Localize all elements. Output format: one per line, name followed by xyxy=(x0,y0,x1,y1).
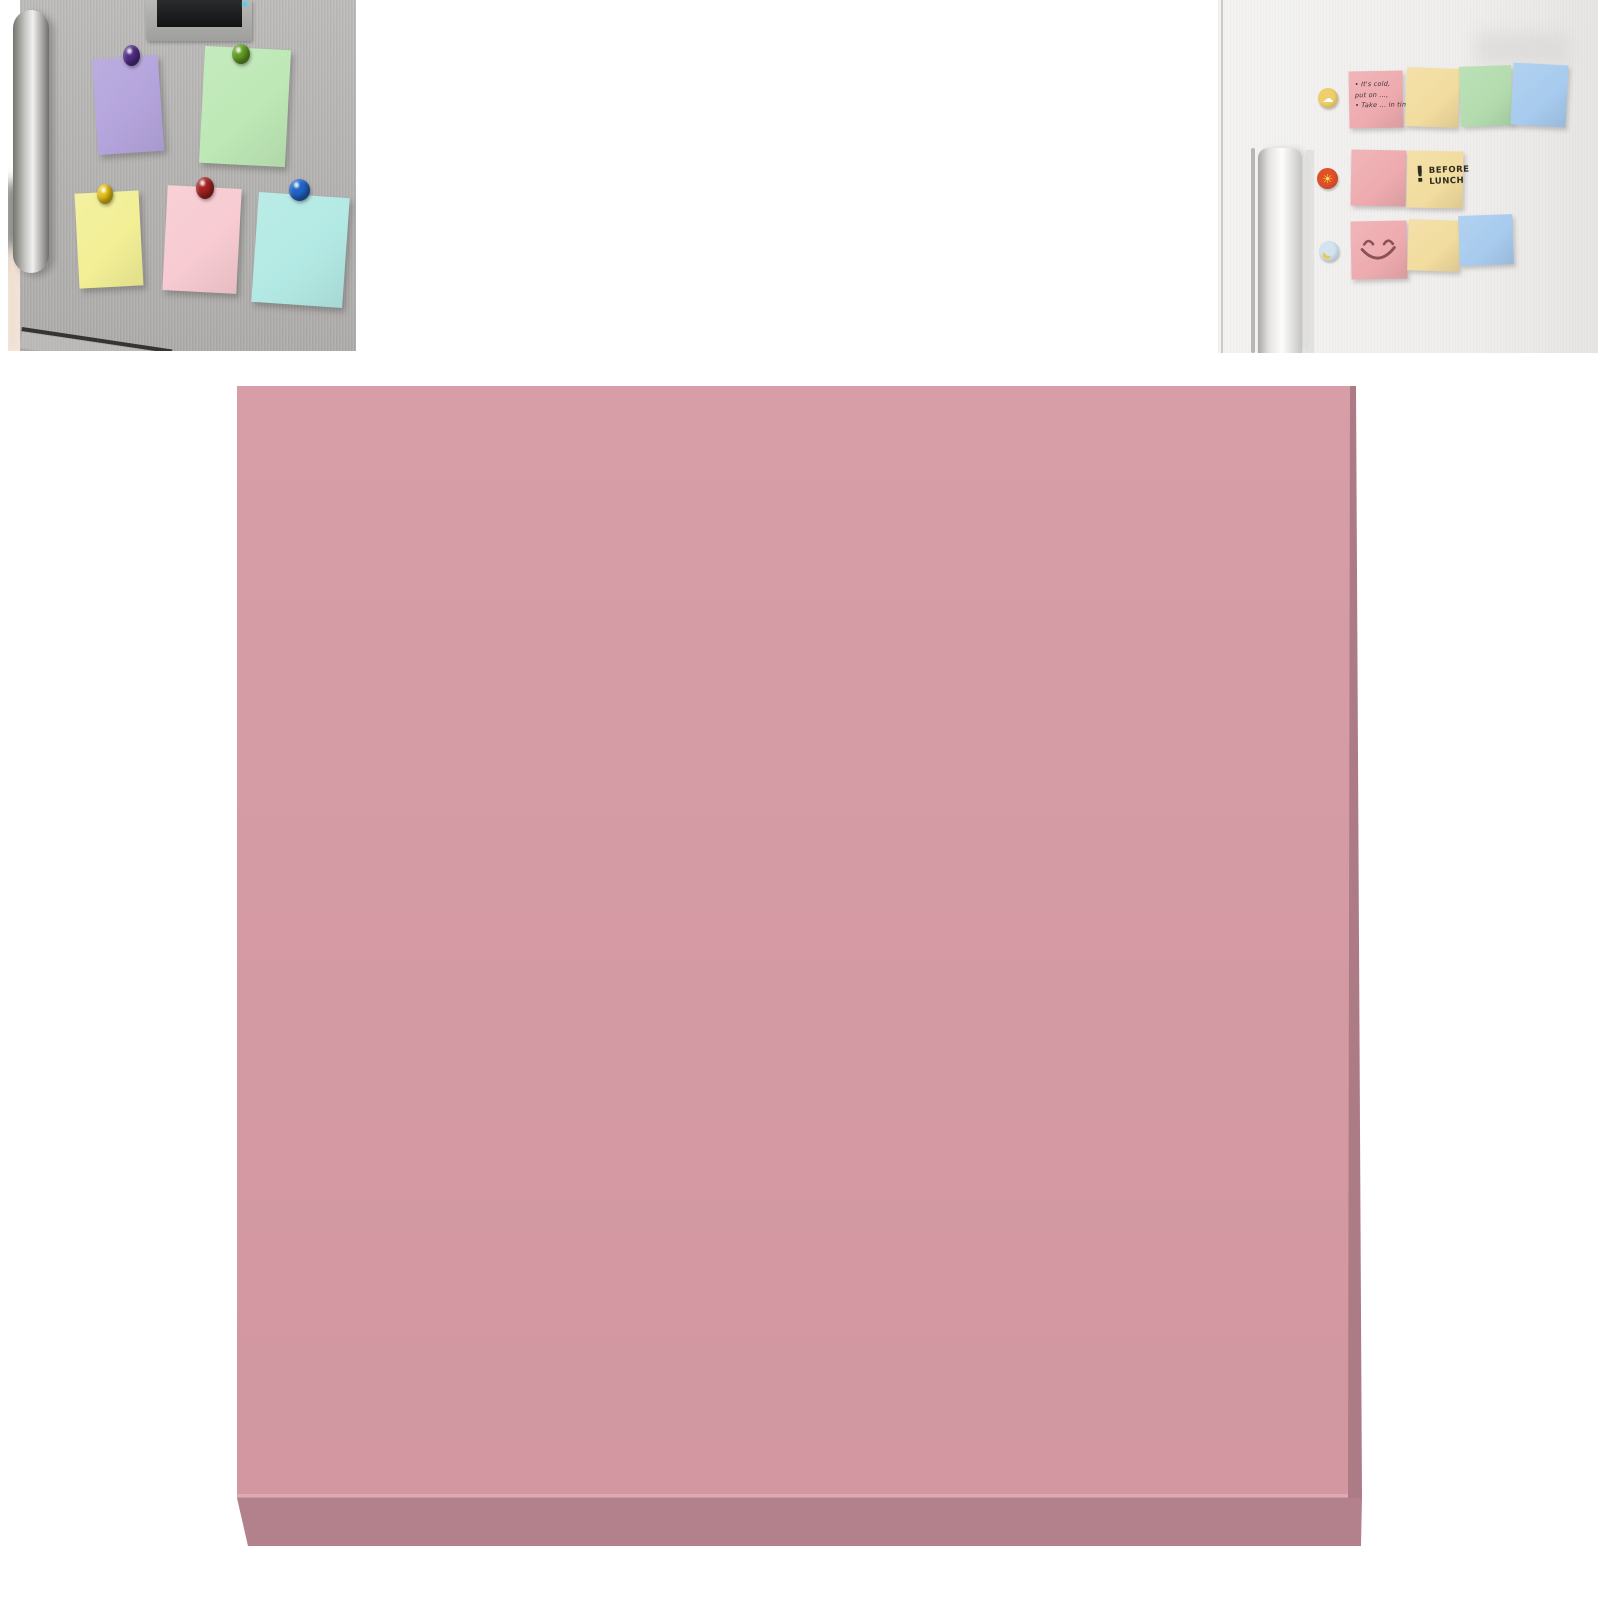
exclamation-mark: ! xyxy=(1415,166,1426,186)
sticky-note-pink xyxy=(162,185,241,294)
fridge-display-panel xyxy=(146,0,252,41)
smiley-face-drawing xyxy=(1357,231,1402,270)
sticky-note-reminder: • It's cold, put on ..., • Take ... in t… xyxy=(1349,71,1404,129)
sticky-note-purple xyxy=(92,55,165,155)
sticky-note-green xyxy=(1459,65,1513,127)
pad-edge-highlight xyxy=(237,1494,1350,1497)
sticky-note-yellow xyxy=(75,190,144,288)
magnet-gloss xyxy=(236,47,241,53)
fridge-handle-reflection xyxy=(1306,150,1314,353)
cloud-magnet-icon: ☁ xyxy=(1318,88,1338,108)
sticky-note-yellow xyxy=(1407,219,1461,272)
banana-icon xyxy=(1323,245,1335,257)
led-indicator xyxy=(243,2,247,6)
magnet-blue xyxy=(289,179,310,201)
handwritten-lunch-text: ! BEFORE LUNCH xyxy=(1407,151,1464,188)
handwritten-reminder-text: • It's cold, put on ..., • Take ... in t… xyxy=(1349,71,1404,112)
cloud-icon: ☁ xyxy=(1323,93,1334,104)
sticky-note-before-lunch: ! BEFORE LUNCH xyxy=(1407,151,1464,209)
magnet-red xyxy=(196,177,214,199)
magnet-gloss xyxy=(127,48,132,54)
banana-magnet-icon xyxy=(1319,241,1339,261)
magnet-gloss xyxy=(200,180,205,186)
sticky-note-smiley xyxy=(1350,221,1407,280)
sticky-note-green xyxy=(199,46,291,167)
fridge-handle xyxy=(1258,148,1302,353)
pad-top-sheet xyxy=(237,386,1350,1498)
photo-fridge-reminder-notes: ☁ ☀ • It's cold, put on ..., • Take ... … xyxy=(1218,0,1598,353)
sticky-note-cyan xyxy=(251,192,349,308)
photo-fridge-magnets xyxy=(8,0,356,351)
fridge-door-seam xyxy=(1251,148,1255,353)
sticky-note-blue xyxy=(1458,214,1514,266)
magnet-gloss xyxy=(294,182,299,188)
fridge-handle xyxy=(13,10,49,273)
sticky-note-yellow xyxy=(1405,67,1460,128)
sticky-note-pink xyxy=(1351,150,1407,207)
wall-shadow xyxy=(1475,33,1570,65)
fridge-display-screen xyxy=(157,0,242,27)
magnet-purple xyxy=(123,45,140,66)
magnet-green xyxy=(232,44,250,64)
magnet-gloss xyxy=(101,187,106,193)
sun-magnet-icon: ☀ xyxy=(1317,168,1338,189)
magnet-yellow xyxy=(97,184,113,204)
sun-icon: ☀ xyxy=(1322,173,1333,185)
product-pink-sticky-pad xyxy=(237,386,1362,1546)
fridge-edge xyxy=(1221,0,1223,353)
sticky-note-blue xyxy=(1510,63,1568,128)
